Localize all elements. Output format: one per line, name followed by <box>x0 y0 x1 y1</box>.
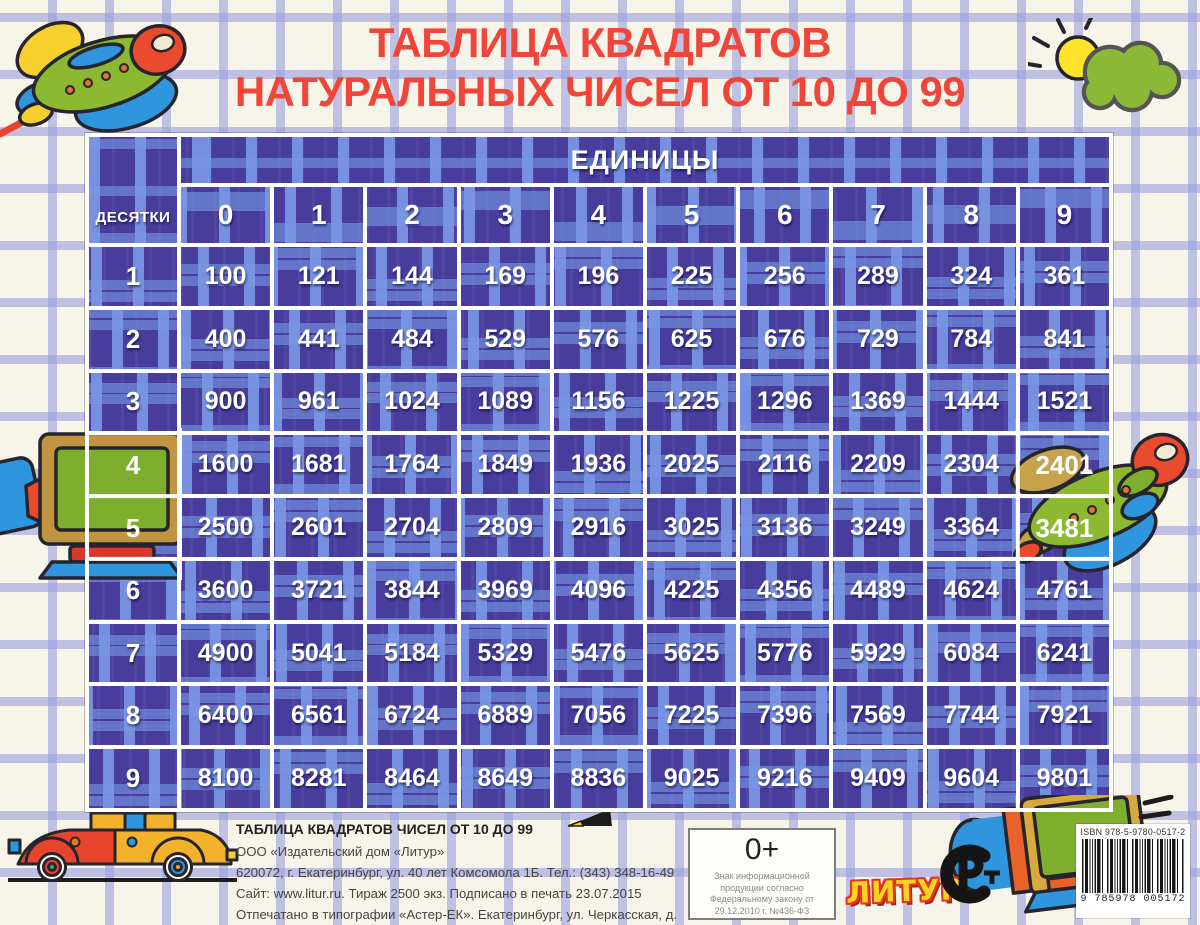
square-of-89: 7921 <box>1020 686 1109 745</box>
square-of-92: 8464 <box>367 749 456 808</box>
square-of-46: 2116 <box>740 435 829 494</box>
square-of-93: 8649 <box>461 749 550 808</box>
square-of-54: 2916 <box>554 498 643 557</box>
imprint-printer: Отпечатано в типографии «Астер-ЕК». Екат… <box>236 904 706 925</box>
square-of-44: 1936 <box>554 435 643 494</box>
square-of-23: 529 <box>461 310 550 369</box>
col-axis-label: ЕДИНИЦЫ <box>181 137 1109 183</box>
square-of-33: 1089 <box>461 373 550 432</box>
square-of-30: 900 <box>181 373 270 432</box>
row-header-3: 3 <box>89 373 177 432</box>
square-of-70: 4900 <box>181 624 270 683</box>
square-of-17: 289 <box>833 247 922 306</box>
square-of-35: 1225 <box>647 373 736 432</box>
square-of-25: 625 <box>647 310 736 369</box>
col-header-6: 6 <box>740 187 829 243</box>
row-axis-label: ДЕСЯТКИ <box>89 137 177 243</box>
col-header-1: 1 <box>274 187 363 243</box>
square-of-13: 169 <box>461 247 550 306</box>
square-of-87: 7569 <box>833 686 922 745</box>
square-of-18: 324 <box>927 247 1016 306</box>
imprint-title: ТАБЛИЦА КВАДРАТОВ ЧИСЕЛ ОТ 10 ДО 99 <box>236 821 706 837</box>
square-of-76: 5776 <box>740 624 829 683</box>
square-of-88: 7744 <box>927 686 1016 745</box>
square-of-81: 6561 <box>274 686 363 745</box>
square-of-12: 144 <box>367 247 456 306</box>
age-rating-note: Знак информационной продукции согласно Ф… <box>690 871 834 917</box>
isbn-text: ISBN 978-5-9780-0517-2 <box>1080 827 1186 837</box>
sun-cloud-icon <box>1028 18 1192 126</box>
col-header-4: 4 <box>554 187 643 243</box>
barcode-digits: 9 785978 005172 <box>1080 894 1186 905</box>
airplane-top-left-icon <box>0 6 196 138</box>
square-of-37: 1369 <box>833 373 922 432</box>
square-of-53: 2809 <box>461 498 550 557</box>
square-of-55: 3025 <box>647 498 736 557</box>
square-of-97: 9409 <box>833 749 922 808</box>
square-of-73: 5329 <box>461 624 550 683</box>
square-of-50: 2500 <box>181 498 270 557</box>
col-header-7: 7 <box>833 187 922 243</box>
square-of-63: 3969 <box>461 561 550 620</box>
square-of-95: 9025 <box>647 749 736 808</box>
square-of-34: 1156 <box>554 373 643 432</box>
square-of-85: 7225 <box>647 686 736 745</box>
square-of-41: 1681 <box>274 435 363 494</box>
overlay-row-header-5: 5 <box>126 513 140 543</box>
square-of-72: 5184 <box>367 624 456 683</box>
imprint-address: 620072, г. Екатеринбург, ул. 40 лет Комс… <box>236 862 706 883</box>
square-of-57: 3249 <box>833 498 922 557</box>
square-of-86: 7396 <box>740 686 829 745</box>
col-header-3: 3 <box>461 187 550 243</box>
square-of-24: 576 <box>554 310 643 369</box>
square-of-14: 196 <box>554 247 643 306</box>
square-of-29: 841 <box>1020 310 1109 369</box>
square-of-65: 4225 <box>647 561 736 620</box>
row-header-9: 9 <box>89 749 177 808</box>
airplane-right-icon: 2401 3481 <box>988 418 1200 590</box>
square-of-45: 2025 <box>647 435 736 494</box>
square-of-75: 5625 <box>647 624 736 683</box>
square-of-40: 1600 <box>181 435 270 494</box>
row-header-7: 7 <box>89 624 177 683</box>
imprint-publisher: ООО «Издательский дом «Литур» <box>236 841 706 862</box>
square-of-10: 100 <box>181 247 270 306</box>
square-of-51: 2601 <box>274 498 363 557</box>
imprint-block: ТАБЛИЦА КВАДРАТОВ ЧИСЕЛ ОТ 10 ДО 99 ООО … <box>236 821 706 925</box>
square-of-22: 484 <box>367 310 456 369</box>
square-of-62: 3844 <box>367 561 456 620</box>
col-header-9: 9 <box>1020 187 1109 243</box>
square-of-21: 441 <box>274 310 363 369</box>
square-of-80: 6400 <box>181 686 270 745</box>
tv-set-left-icon: 4 5 <box>0 428 182 580</box>
square-of-15: 225 <box>647 247 736 306</box>
squares-grid: ДЕСЯТКИЕДИНИЦЫ01234567891100121144169196… <box>89 137 1109 808</box>
square-of-82: 6724 <box>367 686 456 745</box>
imprint-site-print: Сайт: www.litur.ru. Тираж 2500 экз. Подп… <box>236 883 706 904</box>
square-of-77: 5929 <box>833 624 922 683</box>
square-of-56: 3136 <box>740 498 829 557</box>
square-of-20: 400 <box>181 310 270 369</box>
square-of-42: 1764 <box>367 435 456 494</box>
square-of-43: 1849 <box>461 435 550 494</box>
square-of-84: 7056 <box>554 686 643 745</box>
square-of-90: 8100 <box>181 749 270 808</box>
square-of-74: 5476 <box>554 624 643 683</box>
square-of-61: 3721 <box>274 561 363 620</box>
row-header-1: 1 <box>89 247 177 306</box>
overlay-row-header-4: 4 <box>126 450 141 480</box>
square-of-47: 2209 <box>833 435 922 494</box>
col-header-5: 5 <box>647 187 736 243</box>
square-of-91: 8281 <box>274 749 363 808</box>
square-of-83: 6889 <box>461 686 550 745</box>
square-of-64: 4096 <box>554 561 643 620</box>
square-of-26: 676 <box>740 310 829 369</box>
col-header-2: 2 <box>367 187 456 243</box>
age-rating-value: 0+ <box>690 833 834 867</box>
square-of-79: 6241 <box>1020 624 1109 683</box>
barcode <box>1082 839 1184 893</box>
isbn-barcode-box: ISBN 978-5-9780-0517-2 9 785978 005172 <box>1076 824 1190 918</box>
poster-page: ТАБЛИЦА КВАДРАТОВ НАТУРАЛЬНЫХ ЧИСЕЛ ОТ 1… <box>0 0 1200 925</box>
square-of-52: 2704 <box>367 498 456 557</box>
square-of-27: 729 <box>833 310 922 369</box>
square-of-31: 961 <box>274 373 363 432</box>
square-of-19: 361 <box>1020 247 1109 306</box>
squares-table: ДЕСЯТКИЕДИНИЦЫ01234567891100121144169196… <box>85 133 1113 812</box>
col-header-0: 0 <box>181 187 270 243</box>
square-of-60: 3600 <box>181 561 270 620</box>
square-of-96: 9216 <box>740 749 829 808</box>
row-header-8: 8 <box>89 686 177 745</box>
square-of-67: 4489 <box>833 561 922 620</box>
square-of-32: 1024 <box>367 373 456 432</box>
square-of-78: 6084 <box>927 624 1016 683</box>
car-icon <box>5 810 240 910</box>
age-rating-box: 0+ Знак информационной продукции согласн… <box>688 828 836 920</box>
square-of-66: 4356 <box>740 561 829 620</box>
overlay-cell-3481: 3481 <box>1035 513 1093 543</box>
square-of-94: 8836 <box>554 749 643 808</box>
overlay-cell-2401: 2401 <box>1035 450 1093 480</box>
square-of-71: 5041 <box>274 624 363 683</box>
square-of-11: 121 <box>274 247 363 306</box>
square-of-28: 784 <box>927 310 1016 369</box>
row-header-2: 2 <box>89 310 177 369</box>
square-of-36: 1296 <box>740 373 829 432</box>
col-header-8: 8 <box>927 187 1016 243</box>
rst-certification-mark-icon <box>938 843 1006 905</box>
square-of-16: 256 <box>740 247 829 306</box>
